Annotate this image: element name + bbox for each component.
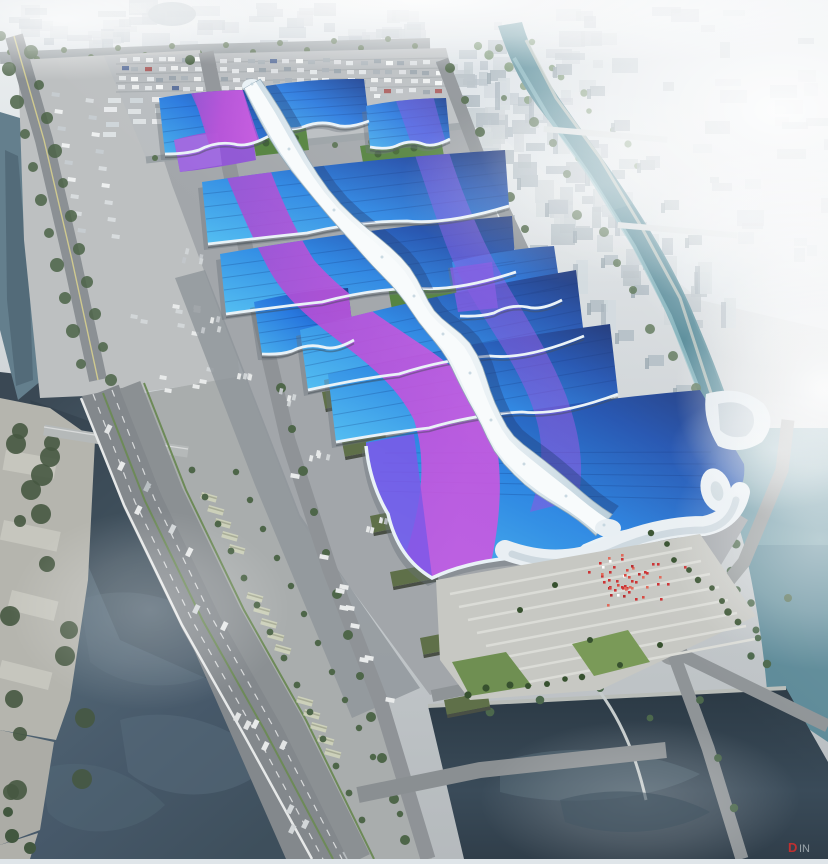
svg-text:IN: IN: [799, 843, 810, 855]
svg-text:D: D: [788, 840, 797, 855]
